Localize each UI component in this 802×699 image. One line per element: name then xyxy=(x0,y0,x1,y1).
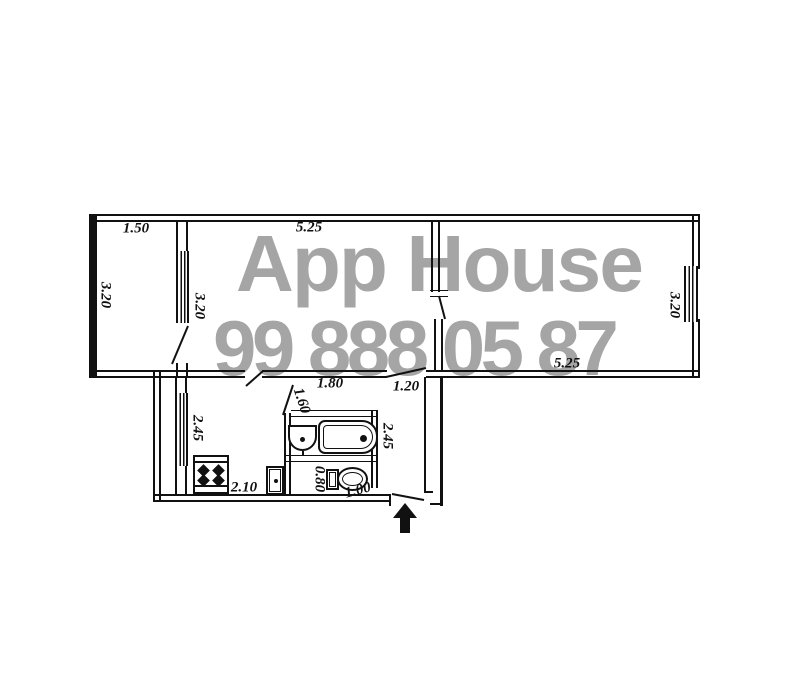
entrance-arrow-icon xyxy=(393,503,417,533)
bathroom-door-leaf xyxy=(283,385,293,415)
door-and-arrow-overlay xyxy=(0,0,802,699)
entrance-door-leaf xyxy=(392,494,424,500)
room1-door-leaf xyxy=(386,368,426,377)
rooms-door-leaf xyxy=(439,296,445,319)
balcony-door-leaf xyxy=(172,326,188,364)
kitchen-door-leaf xyxy=(246,371,263,386)
floor-plan: App House 99 888 05 87 1.50 3.20 5.25 3.… xyxy=(0,0,802,699)
